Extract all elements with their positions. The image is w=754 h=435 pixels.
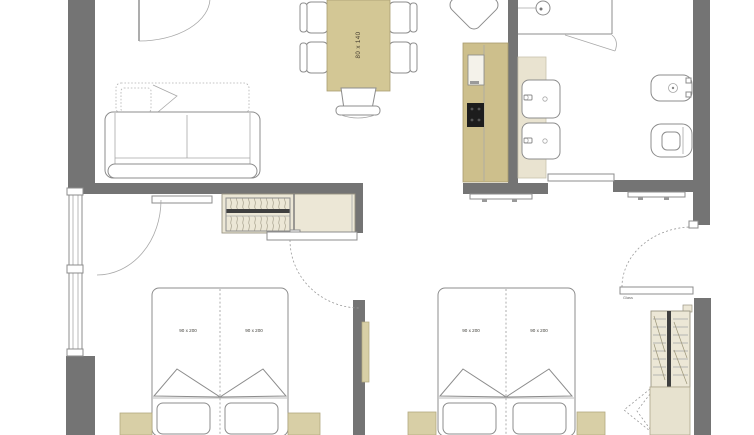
sofa-cushion-outline — [121, 88, 151, 112]
wall-living-bathroom — [508, 0, 518, 192]
floor-plan-drawing: 80 x 140 — [0, 0, 754, 435]
nightstand — [408, 412, 436, 435]
wardrobe-door-swing — [637, 394, 650, 429]
nightstand — [288, 413, 320, 435]
pillow — [443, 403, 496, 434]
bathroom — [518, 0, 692, 178]
dining-chair — [389, 2, 417, 33]
bedroom1-door-arc — [97, 200, 161, 275]
toilet — [651, 124, 692, 157]
fridge — [468, 55, 484, 85]
dining-chair — [336, 88, 380, 118]
window-left — [67, 188, 83, 356]
mattress-size-label: 90 x 200 — [245, 328, 263, 333]
sofa-base — [108, 164, 257, 178]
pillow — [225, 403, 278, 434]
wardrobe-bedroom1 — [222, 194, 355, 236]
lounge-chair — [447, 0, 501, 32]
cooktop — [467, 103, 484, 127]
bed-bedroom2: 90 x 200 90 x 200 — [438, 288, 575, 435]
dining-table-size-label: 80 x 140 — [355, 31, 362, 58]
bedroom2-door-swing-arc — [290, 240, 359, 308]
door-hinge-plate — [689, 221, 698, 228]
nightstand — [577, 412, 605, 435]
hall-door-leaf — [620, 287, 693, 294]
floor-plan: 80 x 140 — [0, 0, 754, 435]
sofa-throw-outline — [116, 83, 249, 113]
sofa-blanket-fold — [153, 85, 177, 112]
window-mullion — [67, 349, 83, 356]
shower-head-icon — [536, 1, 550, 15]
left-wall-top — [68, 0, 95, 186]
pillow — [157, 403, 210, 434]
right-wall-bottom — [694, 298, 711, 435]
dining-chair — [300, 2, 328, 33]
bed-bedroom1: 90 x 200 90 x 200 — [152, 288, 288, 435]
entrance-door — [139, 0, 210, 41]
shower-door — [565, 35, 615, 51]
wall-bathroom-hall — [613, 180, 693, 192]
left-wall-bottom — [66, 356, 95, 435]
bedroom2-door-leaf — [267, 232, 357, 240]
bidet — [651, 75, 692, 101]
radiator — [628, 192, 685, 200]
wall-kitchen-base — [463, 183, 548, 194]
bedroom1-door — [97, 196, 212, 275]
wardrobe-bedroom2 — [624, 305, 692, 435]
hall-glass-door: Glass — [620, 227, 693, 300]
hall-door-swing-arc — [622, 227, 690, 287]
wardrobe-door-swing — [624, 389, 650, 431]
entrance-door-arc — [139, 0, 210, 41]
wall-panel — [362, 322, 369, 382]
window-mullion — [67, 265, 83, 273]
sink — [522, 123, 560, 159]
sink — [522, 80, 560, 118]
wall-living-bedroom1 — [68, 183, 363, 194]
right-wall-top — [693, 0, 710, 225]
sofa — [105, 83, 260, 178]
mattress-size-label: 90 x 200 — [530, 328, 548, 333]
window-mullion — [67, 188, 83, 195]
pillow — [513, 403, 566, 434]
radiator — [470, 194, 532, 202]
dining-chair — [300, 42, 328, 73]
mattress-size-label: 90 x 200 — [179, 328, 197, 333]
sliding-door — [548, 174, 614, 181]
fridge-handle — [470, 81, 479, 84]
shower — [518, 0, 616, 51]
kitchen-unit — [463, 43, 508, 182]
hall-door-label: Glass — [623, 295, 633, 300]
dining-chair — [389, 42, 417, 73]
mattress-size-label: 90 x 200 — [462, 328, 480, 333]
cabinet-bedroom2 — [650, 387, 690, 435]
nightstand — [120, 413, 152, 435]
